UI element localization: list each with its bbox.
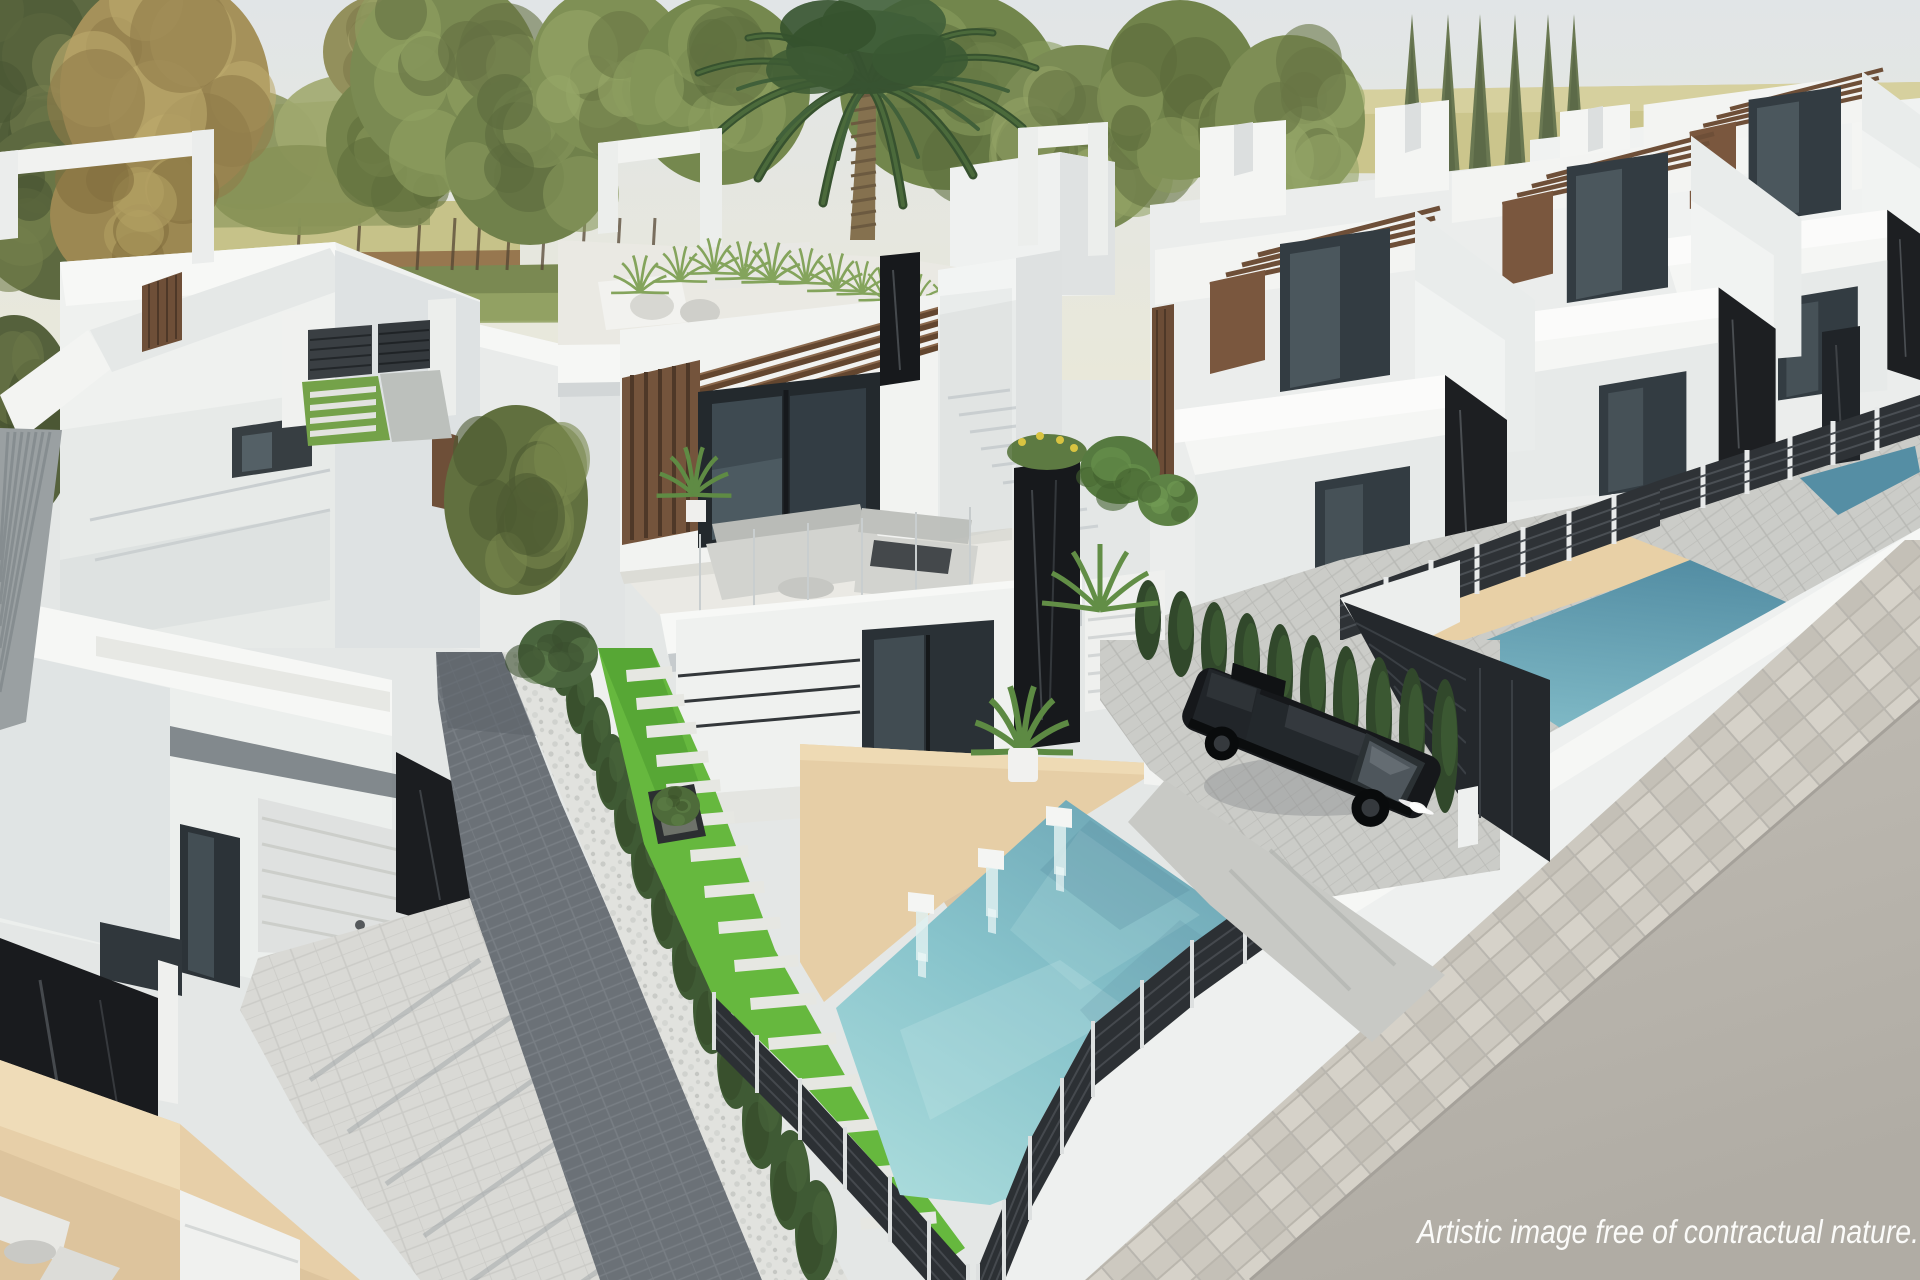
- svg-text:Artistic image free of contrac: Artistic image free of contractual natur…: [1415, 1213, 1919, 1250]
